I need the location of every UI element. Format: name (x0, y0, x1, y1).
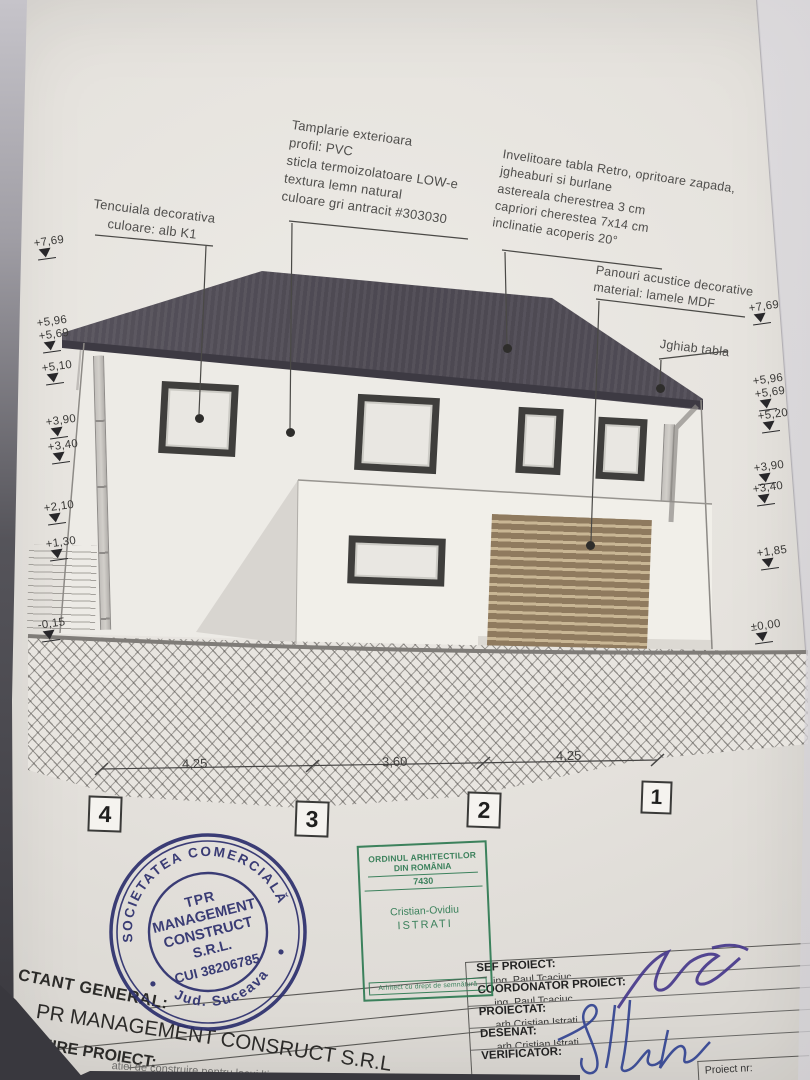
stamp-footer: Arhitect cu drept de semnătură (369, 977, 487, 995)
stamp-dot-right (278, 949, 284, 955)
photographed-elevation-drawing: Tencuiala decorativa culoare: alb K1 Tam… (0, 0, 810, 1080)
architect-stamp: ORDINUL ARHITECTILOR DIN ROMÂNIA 7430 Cr… (357, 840, 494, 1002)
signature-2 (558, 1000, 710, 1073)
signature-1 (618, 945, 748, 1008)
stamp-dot-left (150, 981, 156, 987)
